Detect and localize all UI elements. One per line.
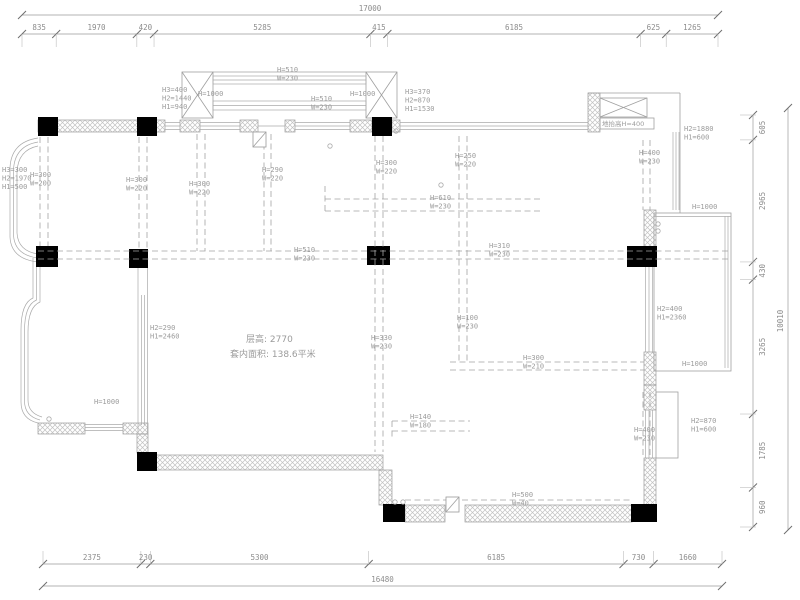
beam-label-line: H=300: [189, 180, 210, 188]
beam-label-line: H=1000: [682, 360, 707, 368]
top-right-flue: [588, 93, 680, 213]
beam-label-line: H1=600: [691, 426, 716, 434]
dim-label: 415: [372, 23, 386, 32]
beam-label-line: W=230: [294, 255, 315, 263]
flue-cross-top-right: [600, 98, 647, 117]
dim-label: 6185: [487, 553, 505, 562]
beam-label: H2=400H1=2360: [657, 305, 687, 322]
beam-label-line: W=200: [30, 180, 51, 188]
beam-label: 层高: 2770: [246, 333, 293, 345]
dim-label: 1660: [679, 553, 698, 562]
beam-label: H=330W=230: [371, 334, 392, 351]
beam-label-line: W=230: [371, 343, 392, 351]
dim-label: 420: [139, 23, 153, 32]
beam-label: H=1000: [350, 90, 375, 98]
beam-label: H=510W=230: [294, 246, 315, 263]
beam-label: H=1000: [692, 203, 717, 211]
beam-label-line: H3=400: [162, 86, 187, 94]
beam-label: H=250W=220: [455, 152, 476, 169]
dim-label: 730: [632, 553, 646, 562]
beam-label: H2=290H1=2460: [150, 324, 180, 341]
beam-label-line: H2=870: [405, 97, 430, 105]
dim-label: 625: [647, 23, 661, 32]
walls: [38, 93, 656, 522]
beam-label: H=140W=180: [410, 413, 431, 430]
beam-label-line: H2=290: [150, 324, 175, 332]
beam-label-line: W=230: [457, 323, 478, 331]
beam-label: H3=300H2=1970H1=500: [2, 166, 32, 191]
beam-label-line: H=1000: [350, 90, 375, 98]
bottom-total-label: 16480: [371, 575, 394, 584]
beam-label: H2=870H1=600: [691, 417, 716, 434]
beam-label: 地抬高H=400: [602, 119, 644, 128]
dim-label: 430: [758, 264, 767, 278]
beam-label-line: H3=300: [2, 166, 27, 174]
beam-label: H=290W=220: [262, 166, 283, 183]
beam-label-line: H1=2360: [657, 314, 687, 322]
beam-label: H=1000: [682, 360, 707, 368]
beam-label: H=300W=220: [126, 176, 147, 193]
dim-label: 230: [139, 553, 153, 562]
beam-label-line: H1=1530: [405, 105, 435, 113]
beam-label: H=100W=230: [457, 314, 478, 331]
beam-label: H=510W=230: [311, 95, 332, 112]
dim-label: 960: [758, 500, 767, 514]
beam-label-line: W=230: [489, 251, 510, 259]
beam-label-line: W=220: [262, 175, 283, 183]
dim-label: 3265: [758, 338, 767, 356]
beam-label-line: W=230: [430, 203, 451, 211]
beam-label-line: W=230: [634, 435, 655, 443]
beam-label-line: H=1000: [198, 90, 223, 98]
beam-label: H3=400H2=1440H1=940: [162, 86, 192, 111]
beam-label: H=300W=210: [523, 354, 544, 371]
beam-label: H=1000: [94, 398, 119, 406]
beam-label-line: H=330: [371, 334, 392, 342]
dim-label: 5300: [250, 553, 269, 562]
beam-label-line: 地抬高H=400: [602, 119, 644, 128]
beam-label-line: H=510: [294, 246, 315, 254]
beam-label-line: H=140: [410, 413, 431, 421]
beam-label-line: W=220: [189, 189, 210, 197]
beam-label-line: H3=370: [405, 88, 430, 96]
beam-label: H=610W=230: [430, 194, 451, 211]
floor-plan-drawing: 8351970420528541561856251265170002375230…: [0, 0, 800, 600]
dim-label: 2965: [758, 192, 767, 210]
beam-label-line: H=290: [262, 166, 283, 174]
dim-label: 6185: [505, 23, 523, 32]
beam-label-line: H1=500: [2, 183, 27, 191]
beam-label-line: H=300: [376, 159, 397, 167]
beam-label-line: H=400: [639, 149, 660, 157]
beam-label: H=300W=220: [189, 180, 210, 197]
floor-plan-canvas: 8351970420528541561856251265170002375230…: [0, 0, 800, 600]
beam-label-line: H2=1440: [162, 95, 192, 103]
beam-label-line: H=510: [277, 66, 298, 74]
beam-label-line: H1=940: [162, 103, 187, 111]
beam-label-line: W=230: [311, 104, 332, 112]
dim-label: 605: [758, 121, 767, 135]
beam-label: H=510W=230: [277, 66, 298, 83]
beam-label-line: H=1000: [94, 398, 119, 406]
beam-label-line: 套内面积: 138.6平米: [230, 348, 316, 360]
beam-label-line: W=230: [639, 158, 660, 166]
beam-label-line: H1=600: [684, 134, 709, 142]
beam-label-line: H=500: [512, 491, 533, 499]
top-total-label: 17000: [359, 4, 382, 13]
dim-label: 835: [32, 23, 46, 32]
beam-label-line: H=300: [126, 176, 147, 184]
dim-label: 1785: [758, 442, 767, 460]
beam-label-line: H=100: [457, 314, 478, 322]
beam-label: H=300W=200: [30, 171, 51, 188]
beam-label-line: W=230: [277, 75, 298, 83]
beam-label-line: H=250: [455, 152, 476, 160]
beam-label-line: H=510: [311, 95, 332, 103]
beam-label-line: H2=870: [691, 417, 716, 425]
beam-label-line: H=310: [489, 242, 510, 250]
beam-label-line: W=180: [410, 422, 431, 430]
beam-label-line: W=40: [512, 500, 529, 508]
beam-label-line: H=300: [30, 171, 51, 179]
beam-label-line: H=1000: [692, 203, 717, 211]
small-right-box: [656, 392, 678, 458]
beam-label-line: H2=400: [657, 305, 682, 313]
beam-label: H2=1880H1=600: [684, 125, 714, 142]
beam-label-line: W=210: [523, 363, 544, 371]
beam-label: H=400W=230: [639, 149, 660, 166]
beam-label: H=300W=220: [376, 159, 397, 176]
beam-label: H3=370H2=870H1=1530: [405, 88, 435, 113]
dim-label: 5285: [253, 23, 271, 32]
dim-label: 1970: [87, 23, 106, 32]
beam-label: 套内面积: 138.6平米: [230, 348, 316, 360]
beam-label-line: W=220: [126, 185, 147, 193]
dim-label: 1265: [683, 23, 701, 32]
beam-label-line: H2=1970: [2, 175, 32, 183]
beam-label-line: H=610: [430, 194, 451, 202]
beam-label-line: H2=1880: [684, 125, 714, 133]
beam-label: H=1000: [198, 90, 223, 98]
beam-label-line: 层高: 2770: [246, 333, 293, 345]
beam-label-line: W=220: [376, 168, 397, 176]
right-total-label: 10010: [776, 309, 785, 332]
beam-label-line: H=300: [523, 354, 544, 362]
beam-label-line: H=400: [634, 426, 655, 434]
beam-label-line: W=220: [455, 161, 476, 169]
beam-label: H=310W=230: [489, 242, 510, 259]
beam-label-line: H1=2460: [150, 333, 180, 341]
beam-label: H=400W=230: [634, 426, 655, 443]
dim-label: 2375: [83, 553, 101, 562]
